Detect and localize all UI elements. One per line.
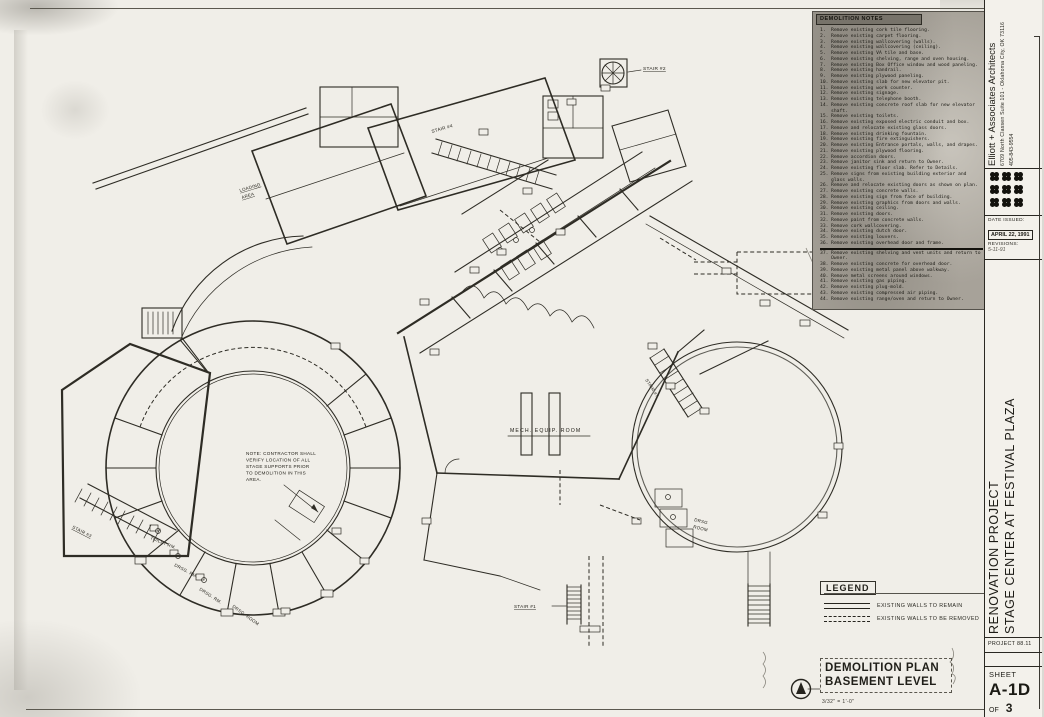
note-text: Remove existing shelving and vent units … xyxy=(831,251,983,263)
note-text: Remove existing overhead door and frame. xyxy=(831,241,983,247)
of-label: OF xyxy=(989,707,999,714)
room-label-toilet: TOILET RM. xyxy=(150,535,177,550)
titleblock-empty-box xyxy=(985,652,1042,666)
legend: LEGEND EXISTING WALLS TO REMAIN EXISTING… xyxy=(820,578,986,622)
note-number: 36. xyxy=(820,241,831,247)
project-title: RENOVATION PROJECT STAGE CENTER AT FESTI… xyxy=(987,262,1039,634)
elliott-logo xyxy=(990,172,1030,214)
legend-label-remain: EXISTING WALLS TO REMAIN xyxy=(877,603,963,609)
stair-1 xyxy=(552,556,603,648)
pencil-mark xyxy=(763,652,766,688)
project-title-line2: STAGE CENTER AT FESTIVAL PLAZA xyxy=(1003,262,1017,634)
architect-info: Elliott + Associates Architects 6709 Nor… xyxy=(987,4,1041,166)
stair-2-label: STAIR #2 xyxy=(643,66,666,72)
stair-3-label: STAIR #3 xyxy=(72,524,93,538)
plan-title-line1: DEMOLITION PLAN xyxy=(825,662,947,676)
date-issued-box: DATE ISSUED: APRIL 22, 1991 REVISIONS: 5… xyxy=(988,218,1040,253)
svg-text:TO DEMOLITION IN THIS: TO DEMOLITION IN THIS xyxy=(246,471,306,476)
stair-2-cluster xyxy=(462,59,686,214)
project-number: PROJECT 88.11 xyxy=(985,637,1042,652)
legend-rule xyxy=(824,593,986,594)
legend-row-remain: EXISTING WALLS TO REMAIN xyxy=(824,603,986,609)
stair-1-label: STAIR #1 xyxy=(514,604,536,609)
title-block: Elliott + Associates Architects 6709 Nor… xyxy=(984,0,1042,717)
room-label-drsg-1: DRSG. RM. xyxy=(174,562,199,579)
legend-row-removed: EXISTING WALLS TO BE REMOVED xyxy=(824,616,986,622)
small-stair-midleft xyxy=(142,308,208,372)
architect-name: Elliott + Associates Architects xyxy=(987,4,998,166)
central-corridor xyxy=(331,152,692,505)
mech-equip-room xyxy=(404,330,704,590)
note-item: 44. Remove existing range/oven and retur… xyxy=(820,297,983,303)
note-number: 37. xyxy=(820,251,831,263)
plan-title: DEMOLITION PLAN BASEMENT LEVEL xyxy=(820,658,952,693)
loading-area-label-1: LOADING xyxy=(239,182,262,193)
drsg-room-b-label-2: ROOM xyxy=(693,524,709,532)
stair-7 xyxy=(648,341,768,417)
note-text: Remove signs from existing building exte… xyxy=(831,172,983,184)
keynote-tags xyxy=(281,528,369,614)
note-number: 44. xyxy=(820,297,831,303)
svg-text:AREA.: AREA. xyxy=(246,477,261,482)
note-text: Remove existing concrete roof slab for n… xyxy=(831,103,983,115)
project-title-bracket xyxy=(1034,36,1040,709)
drawing-sheet: TOILET RM. DRSG. RM. DRSG. RM. DRSG. ROO… xyxy=(0,0,1044,717)
sheet-of: OF3 xyxy=(989,701,1042,715)
contractor-note: NOTE: CONTRACTOR SHALL VERIFY LOCATION O… xyxy=(246,451,318,512)
north-arrow-icon xyxy=(788,677,814,703)
stair-4-label: STAIR #4 xyxy=(431,123,454,134)
demolition-notes-panel: DEMOLITION NOTES 1. Remove existing cork… xyxy=(812,11,987,310)
date-issued-value: APRIL 22, 1991 xyxy=(988,230,1033,240)
legend-label-removed: EXISTING WALLS TO BE REMOVED xyxy=(877,616,979,622)
mech-room-label: MECH. EQUIP. ROOM xyxy=(510,428,581,434)
sheet-label: SHEET xyxy=(989,670,1042,679)
svg-text:VERIFY LOCATION OF ALL: VERIFY LOCATION OF ALL xyxy=(246,458,311,463)
loading-area-label-2: AREA xyxy=(241,191,255,200)
notes-list: 1. Remove existing cork tile flooring. 2… xyxy=(813,28,986,302)
note-text: Remove existing range/oven and return to… xyxy=(831,297,983,303)
note-number: 14. xyxy=(820,103,831,115)
architect-phone: 405-843-9554 xyxy=(1009,4,1015,166)
revision-value: 5-11-91 xyxy=(988,247,1040,253)
loading-wing xyxy=(93,87,426,372)
room-label-drsg-2: DRSG. RM. xyxy=(198,587,222,605)
note-item: 25. Remove signs from existing building … xyxy=(820,172,983,184)
dashed-wall-symbol xyxy=(824,616,870,622)
svg-text:NOTE: CONTRACTOR SHALL: NOTE: CONTRACTOR SHALL xyxy=(246,451,316,456)
notes-title: DEMOLITION NOTES xyxy=(816,14,922,25)
architect-address: 6709 North Classen Suite 101 - Oklahoma … xyxy=(1000,4,1006,166)
of-total: 3 xyxy=(1006,701,1013,715)
plan-scale: 3/32" = 1'-0" xyxy=(822,699,854,705)
stage-hall xyxy=(62,344,210,556)
note-item: 37. Remove existing shelving and vent un… xyxy=(820,251,983,263)
round-room-right xyxy=(600,342,843,626)
stair-7-label: STAIR #7 xyxy=(644,378,660,399)
sheet-box: SHEET A-1D OF3 xyxy=(985,666,1042,717)
sheet-number: A-1D xyxy=(989,680,1042,700)
note-item: 14. Remove existing concrete roof slab f… xyxy=(820,103,983,115)
date-issued-label: DATE ISSUED: xyxy=(988,218,1040,223)
solid-wall-symbol xyxy=(824,603,870,609)
stair-4-block xyxy=(368,78,575,210)
note-item: 36. Remove existing overhead door and fr… xyxy=(820,241,983,250)
svg-text:STAGE SUPPORTS PRIOR: STAGE SUPPORTS PRIOR xyxy=(246,464,310,469)
plan-title-line2: BASEMENT LEVEL xyxy=(825,676,947,690)
project-title-line1: RENOVATION PROJECT xyxy=(987,262,1001,634)
note-number: 25. xyxy=(820,172,831,184)
